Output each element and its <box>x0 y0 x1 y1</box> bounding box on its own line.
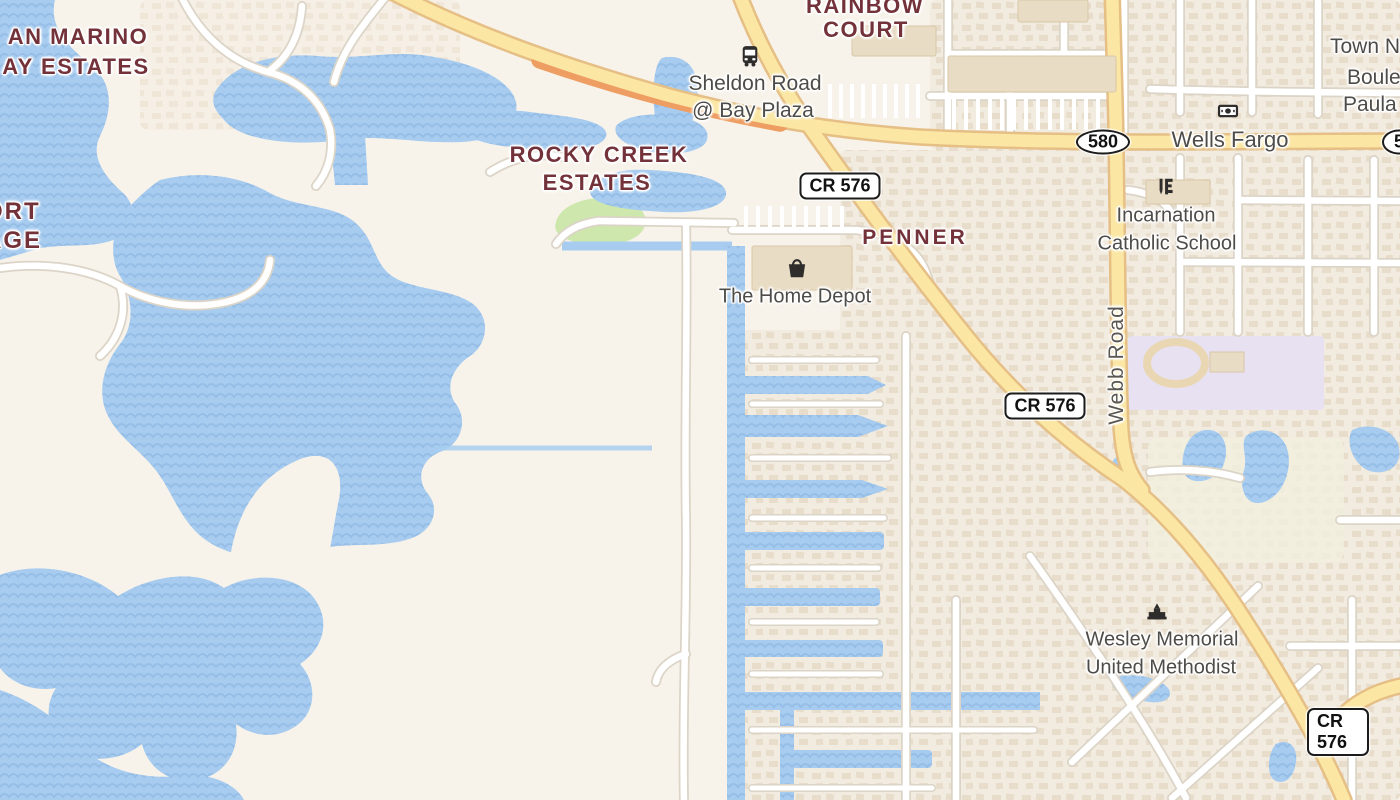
neighborhood-label-penner: PENNER <box>862 226 968 250</box>
poi-label-town-n: Town N <box>1330 35 1400 59</box>
route-shield-cr576-bottom: CR 576 <box>1307 708 1369 756</box>
neighborhood-label-san-marino-line1: AN MARINO <box>8 24 149 50</box>
road-label-webb-road: Webb Road <box>1105 305 1129 425</box>
route-shield-cr576-top: CR 576 <box>799 173 880 200</box>
strip-mall-building <box>948 56 1116 92</box>
neighborhood-label-rocky-creek-line1: ROCKY CREEK <box>510 142 689 168</box>
bus-icon <box>738 44 763 69</box>
poi-label-paula: Paula <box>1343 93 1397 117</box>
poi-label-home-depot: The Home Depot <box>719 286 871 309</box>
school-icon <box>1155 176 1177 198</box>
neighborhood-label-village-line2: AGE <box>0 227 42 255</box>
neighborhood-label-san-marino-line2: AY ESTATES <box>2 54 149 80</box>
neighborhood-label-village-line1: ORT <box>0 198 41 226</box>
poi-label-incarnation-line1: Incarnation <box>1117 205 1216 228</box>
shopping-bag-icon <box>784 255 810 281</box>
poi-label-incarnation-line2: Catholic School <box>1098 233 1237 256</box>
route-shield-cr576-mid: CR 576 <box>1004 393 1085 420</box>
money-icon <box>1217 100 1240 123</box>
poi-label-sheldon-bay-plaza-line1: Sheldon Road <box>688 72 821 96</box>
campus-building <box>1210 352 1244 372</box>
route-shield-580: 580 <box>1076 130 1130 155</box>
neighborhood-label-rocky-creek-line2: ESTATES <box>543 170 652 196</box>
poi-label-wells-fargo: Wells Fargo <box>1172 127 1289 153</box>
poi-label-sheldon-bay-plaza-line2: @ Bay Plaza <box>692 99 814 123</box>
neighborhood-label-rainbow-line2: COURT <box>823 17 909 43</box>
map-canvas[interactable]: AN MARINO AY ESTATES ORT AGE RAINBOW COU… <box>0 0 1400 800</box>
poi-label-wesley-line2: United Methodist <box>1086 657 1236 680</box>
poi-label-boule: Boule <box>1347 66 1400 90</box>
church-icon <box>1144 602 1170 624</box>
poi-label-wesley-line1: Wesley Memorial <box>1086 629 1239 652</box>
